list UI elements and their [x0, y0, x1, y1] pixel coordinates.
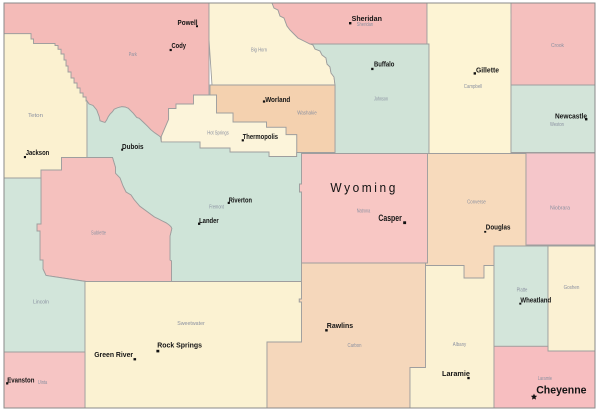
svg-text:Campbell: Campbell	[464, 84, 482, 90]
svg-text:Gillette: Gillette	[476, 65, 499, 74]
svg-text:Platte: Platte	[517, 287, 528, 293]
svg-text:Lander: Lander	[199, 216, 219, 225]
svg-text:Thermopolis: Thermopolis	[243, 132, 278, 141]
svg-text:Powell: Powell	[178, 18, 198, 27]
svg-text:Jackson: Jackson	[26, 148, 50, 157]
svg-text:Big Horn: Big Horn	[251, 48, 267, 54]
svg-text:Green River: Green River	[94, 350, 133, 359]
svg-text:Laramie: Laramie	[538, 376, 552, 382]
svg-text:Fremont: Fremont	[209, 204, 224, 210]
svg-text:Uinta: Uinta	[38, 380, 48, 386]
svg-text:Sheridan: Sheridan	[352, 14, 383, 23]
svg-text:Riverton: Riverton	[229, 196, 253, 205]
svg-text:Evanston: Evanston	[7, 375, 35, 384]
svg-text:Washakie: Washakie	[297, 111, 317, 117]
svg-text:Casper: Casper	[378, 213, 402, 223]
svg-text:Johnson: Johnson	[374, 97, 388, 103]
svg-text:Sweetwater: Sweetwater	[177, 321, 205, 327]
svg-text:Goshen: Goshen	[564, 285, 580, 291]
svg-text:Laramie: Laramie	[442, 369, 470, 378]
svg-text:Douglas: Douglas	[486, 223, 511, 232]
svg-text:Dubois: Dubois	[122, 142, 144, 151]
svg-text:Carbon: Carbon	[348, 343, 362, 349]
svg-text:Lincoln: Lincoln	[33, 300, 49, 306]
svg-text:Teton: Teton	[28, 113, 43, 119]
svg-text:Sublette: Sublette	[91, 231, 106, 237]
svg-text:Cheyenne: Cheyenne	[536, 385, 586, 397]
svg-text:Hot Springs: Hot Springs	[207, 131, 229, 137]
svg-text:Wyoming: Wyoming	[330, 180, 398, 195]
svg-text:Natrona: Natrona	[357, 209, 371, 215]
svg-text:Cody: Cody	[172, 41, 187, 50]
svg-text:Weston: Weston	[550, 122, 564, 128]
svg-text:Niobrara: Niobrara	[550, 206, 570, 212]
svg-text:Rock Springs: Rock Springs	[157, 341, 202, 350]
svg-text:Converse: Converse	[467, 200, 486, 206]
svg-text:Rawlins: Rawlins	[327, 321, 353, 330]
svg-text:Newcastle: Newcastle	[555, 112, 587, 121]
svg-text:Worland: Worland	[265, 95, 291, 104]
svg-text:Wheatland: Wheatland	[520, 296, 551, 305]
svg-text:Park: Park	[129, 52, 137, 58]
svg-text:Crook: Crook	[551, 43, 564, 49]
svg-text:Buffalo: Buffalo	[374, 60, 395, 69]
svg-text:Albany: Albany	[453, 342, 467, 348]
